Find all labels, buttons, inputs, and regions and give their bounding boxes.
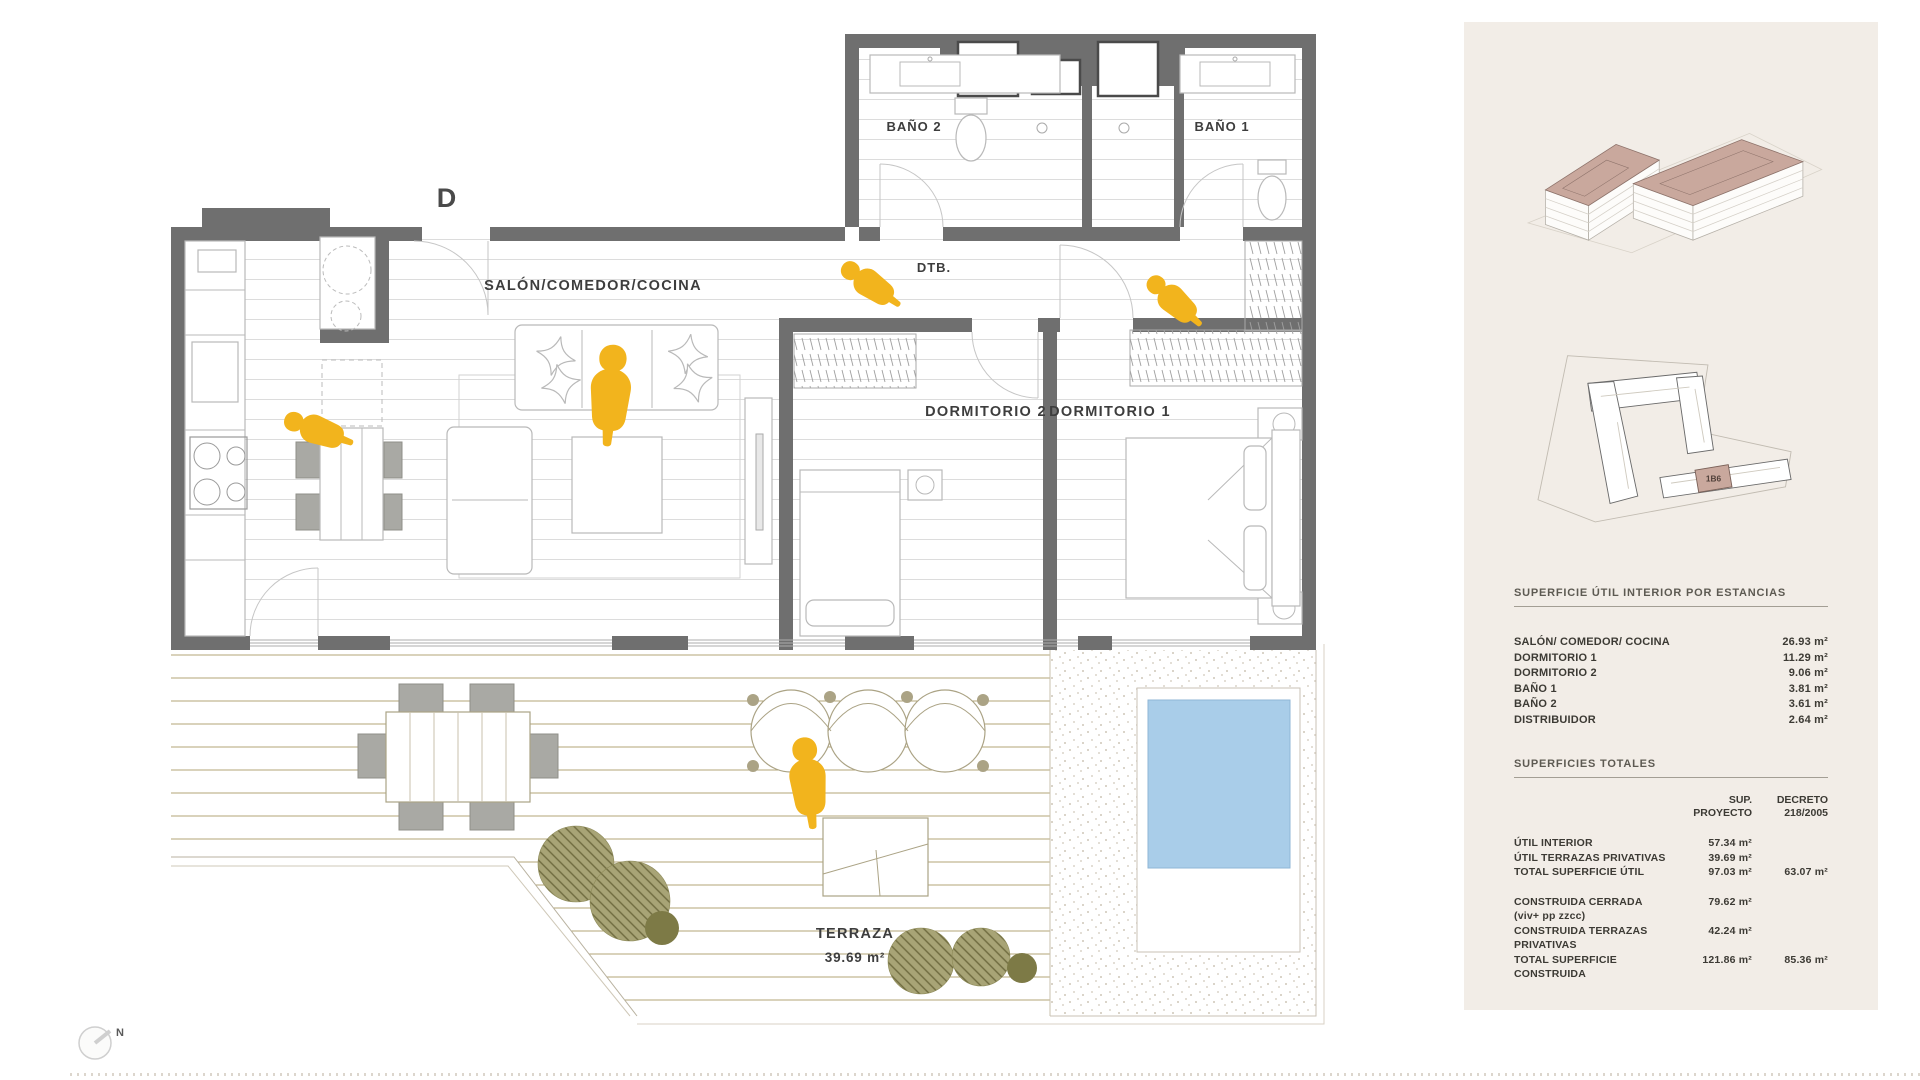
page: D SALÓN/COMEDOR/COCINA BAÑO 2 BAÑO 1 DTB… xyxy=(0,0,1920,1080)
rooms-table-rows: SALÓN/ COMEDOR/ COCINA26.93 m² DORMITORI… xyxy=(1514,635,1828,728)
building-render-svg xyxy=(1514,80,1828,292)
north-arrow-icon: N xyxy=(79,1027,124,1059)
building-wing-right xyxy=(1633,140,1803,240)
table-row: BAÑO 13.81 m² xyxy=(1514,682,1828,698)
duct-niche xyxy=(1098,42,1158,96)
room-label-terraza: TERRAZA xyxy=(816,926,894,942)
table-row: ÚTIL TERRAZAS PRIVATIVAS39.69 m² xyxy=(1514,851,1828,866)
room-label-bano2: BAÑO 2 xyxy=(886,119,941,134)
chair xyxy=(399,802,443,830)
terraza-area-label: 39.69 m² xyxy=(825,950,885,965)
vanity-bano1 xyxy=(1180,55,1295,93)
plant xyxy=(645,911,679,945)
nightstand xyxy=(908,470,942,500)
room-label-dormitorio2: DORMITORIO 2 xyxy=(925,404,1047,420)
pool xyxy=(1148,700,1290,868)
table-row: DISTRIBUIDOR2.64 m² xyxy=(1514,713,1828,729)
table-row: TOTAL SUPERFICIE ÚTIL97.03 m²63.07 m² xyxy=(1514,865,1828,880)
totals-table: SUPERFICIES TOTALES SUP.PROYECTO DECRETO… xyxy=(1514,758,1828,982)
wardrobe xyxy=(794,334,916,388)
pillow xyxy=(1244,446,1266,510)
plant xyxy=(1007,953,1037,983)
chair xyxy=(470,684,514,712)
totals-column-headers: SUP.PROYECTO DECRETO218/2005 xyxy=(1514,794,1828,820)
tv xyxy=(756,434,763,530)
site-plan-svg: 1B6 xyxy=(1514,340,1828,545)
table-row: CONSTRUIDA TERRAZAS PRIVATIVAS42.24 m² xyxy=(1514,924,1828,953)
chair xyxy=(296,494,320,530)
low-table xyxy=(823,818,928,896)
table-row: BAÑO 23.61 m² xyxy=(1514,697,1828,713)
entry-label: D xyxy=(437,183,458,213)
table-row: ÚTIL INTERIOR57.34 m² xyxy=(1514,836,1828,851)
vanity-bano2 xyxy=(870,55,1060,93)
table-row: DORMITORIO 29.06 m² xyxy=(1514,666,1828,682)
totals-table-title: SUPERFICIES TOTALES xyxy=(1514,758,1828,778)
toilet-bano2 xyxy=(955,98,987,161)
wardrobe xyxy=(1245,241,1302,331)
unit-tag: 1B6 xyxy=(1706,473,1722,483)
table-row: CONSTRUIDA CERRADA (viv+ pp zzcc)79.62 m… xyxy=(1514,895,1828,924)
coffee-table xyxy=(572,437,662,533)
kitchen-column xyxy=(320,237,375,329)
info-panel: 1B6 SUPERFICIE ÚTIL INTERIOR POR ESTANCI… xyxy=(1464,22,1878,1010)
pillow xyxy=(806,600,894,626)
entry-threshold xyxy=(422,227,490,241)
oven xyxy=(192,342,238,402)
sink xyxy=(198,250,236,272)
kitchen-counter xyxy=(185,241,245,636)
floor-plan: D SALÓN/COMEDOR/COCINA BAÑO 2 BAÑO 1 DTB… xyxy=(0,0,1330,1080)
rooms-table-title: SUPERFICIE ÚTIL INTERIOR POR ESTANCIAS xyxy=(1514,587,1828,607)
plant xyxy=(888,928,954,994)
chair xyxy=(399,684,443,712)
room-label-dormitorio1: DORMITORIO 1 xyxy=(1049,404,1171,420)
table-row: DORMITORIO 111.29 m² xyxy=(1514,651,1828,667)
chair xyxy=(470,802,514,830)
chair xyxy=(296,442,320,478)
table-row: SALÓN/ COMEDOR/ COCINA26.93 m² xyxy=(1514,635,1828,651)
room-label-bano1: BAÑO 1 xyxy=(1194,119,1249,134)
plant xyxy=(952,928,1010,986)
wardrobe xyxy=(1130,330,1302,386)
north-label: N xyxy=(116,1027,124,1039)
chair xyxy=(384,494,402,530)
totals-table-rows: ÚTIL INTERIOR57.34 m² ÚTIL TERRAZAS PRIV… xyxy=(1514,836,1828,982)
room-label-dtb: DTB. xyxy=(917,260,951,275)
room-label-salon: SALÓN/COMEDOR/COCINA xyxy=(484,276,702,294)
chair xyxy=(384,442,402,478)
toilet-bano1 xyxy=(1258,160,1286,220)
headboard xyxy=(1272,430,1300,606)
building-render xyxy=(1514,80,1828,292)
loungers xyxy=(747,690,989,772)
rooms-table: SUPERFICIE ÚTIL INTERIOR POR ESTANCIAS S… xyxy=(1514,587,1828,728)
ground-texture-strip xyxy=(70,1073,1920,1076)
chair xyxy=(358,734,386,778)
pillow xyxy=(1244,526,1266,590)
table-row: TOTAL SUPERFICIE CONSTRUIDA121.86 m²85.3… xyxy=(1514,953,1828,982)
chair xyxy=(530,734,558,778)
site-plan: 1B6 xyxy=(1514,340,1828,545)
